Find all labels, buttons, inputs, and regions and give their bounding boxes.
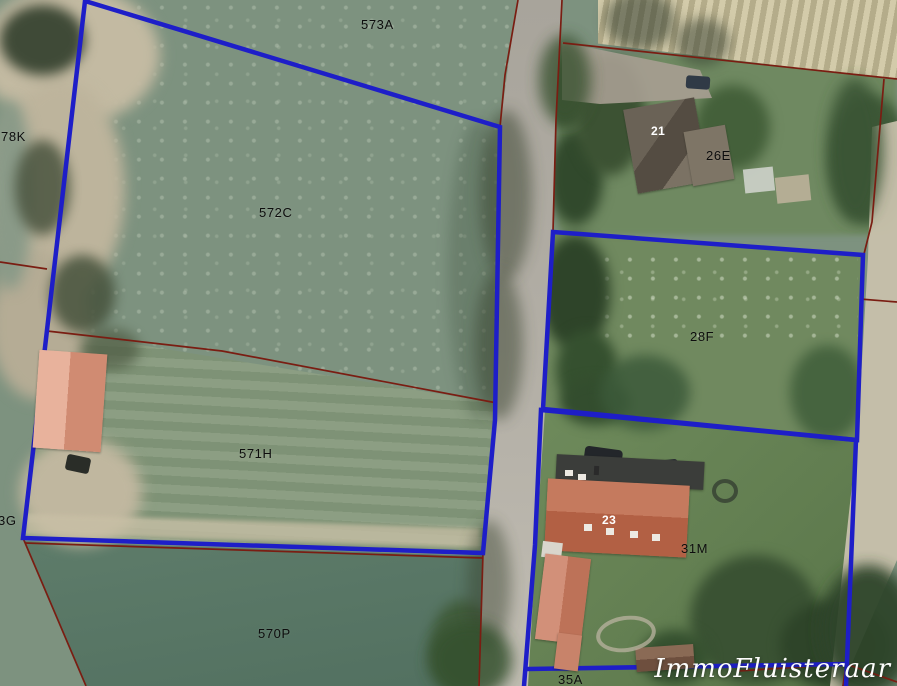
parcel-label-573a: 573A <box>361 17 394 32</box>
parcel-label-572c: 572C <box>259 205 292 220</box>
roof-window <box>578 474 586 480</box>
parcel-label-31m: 31M <box>681 541 708 556</box>
vehicle <box>686 75 711 90</box>
parcel-label-28f: 28F <box>690 329 714 344</box>
roof-window <box>652 534 660 541</box>
parcel-label-570p: 570P <box>258 626 291 641</box>
parcel-label-35a: 35A <box>558 672 583 686</box>
parcel-label-571h: 571H <box>239 446 272 461</box>
shed <box>775 174 812 203</box>
roof-window <box>584 524 592 531</box>
cadastral-boundaries <box>0 0 897 686</box>
greenhouse <box>743 166 775 193</box>
house-23-roof <box>544 478 690 557</box>
aerial-map: 573A 78K 572C 571H 3G 570P 26E 28F 31M 3… <box>0 0 897 686</box>
barn-571h <box>33 350 108 453</box>
cadastral-line-572c-571h <box>47 331 497 403</box>
trampoline <box>712 479 738 503</box>
tree-overhang <box>539 35 591 125</box>
parcel-label-26e: 26E <box>706 148 731 163</box>
parcel-label-3g: 3G <box>0 513 17 528</box>
tree-shadow <box>480 110 532 280</box>
chimney <box>594 466 599 475</box>
parcel-outline-572c-571h <box>23 1 500 553</box>
outbuilding-wing <box>554 633 582 672</box>
cadastral-line-left-spur <box>0 262 47 269</box>
parcel-label-78k: 78K <box>1 129 26 144</box>
roof-window <box>606 528 614 535</box>
cadastral-line-bottomleft <box>23 538 86 686</box>
roof-window <box>630 531 638 538</box>
map-overlay <box>0 0 897 686</box>
watermark: ImmoFluisteraar <box>654 654 891 684</box>
roof-window <box>565 470 573 476</box>
house-number-23: 23 <box>602 513 616 527</box>
house-number-21: 21 <box>651 124 665 138</box>
